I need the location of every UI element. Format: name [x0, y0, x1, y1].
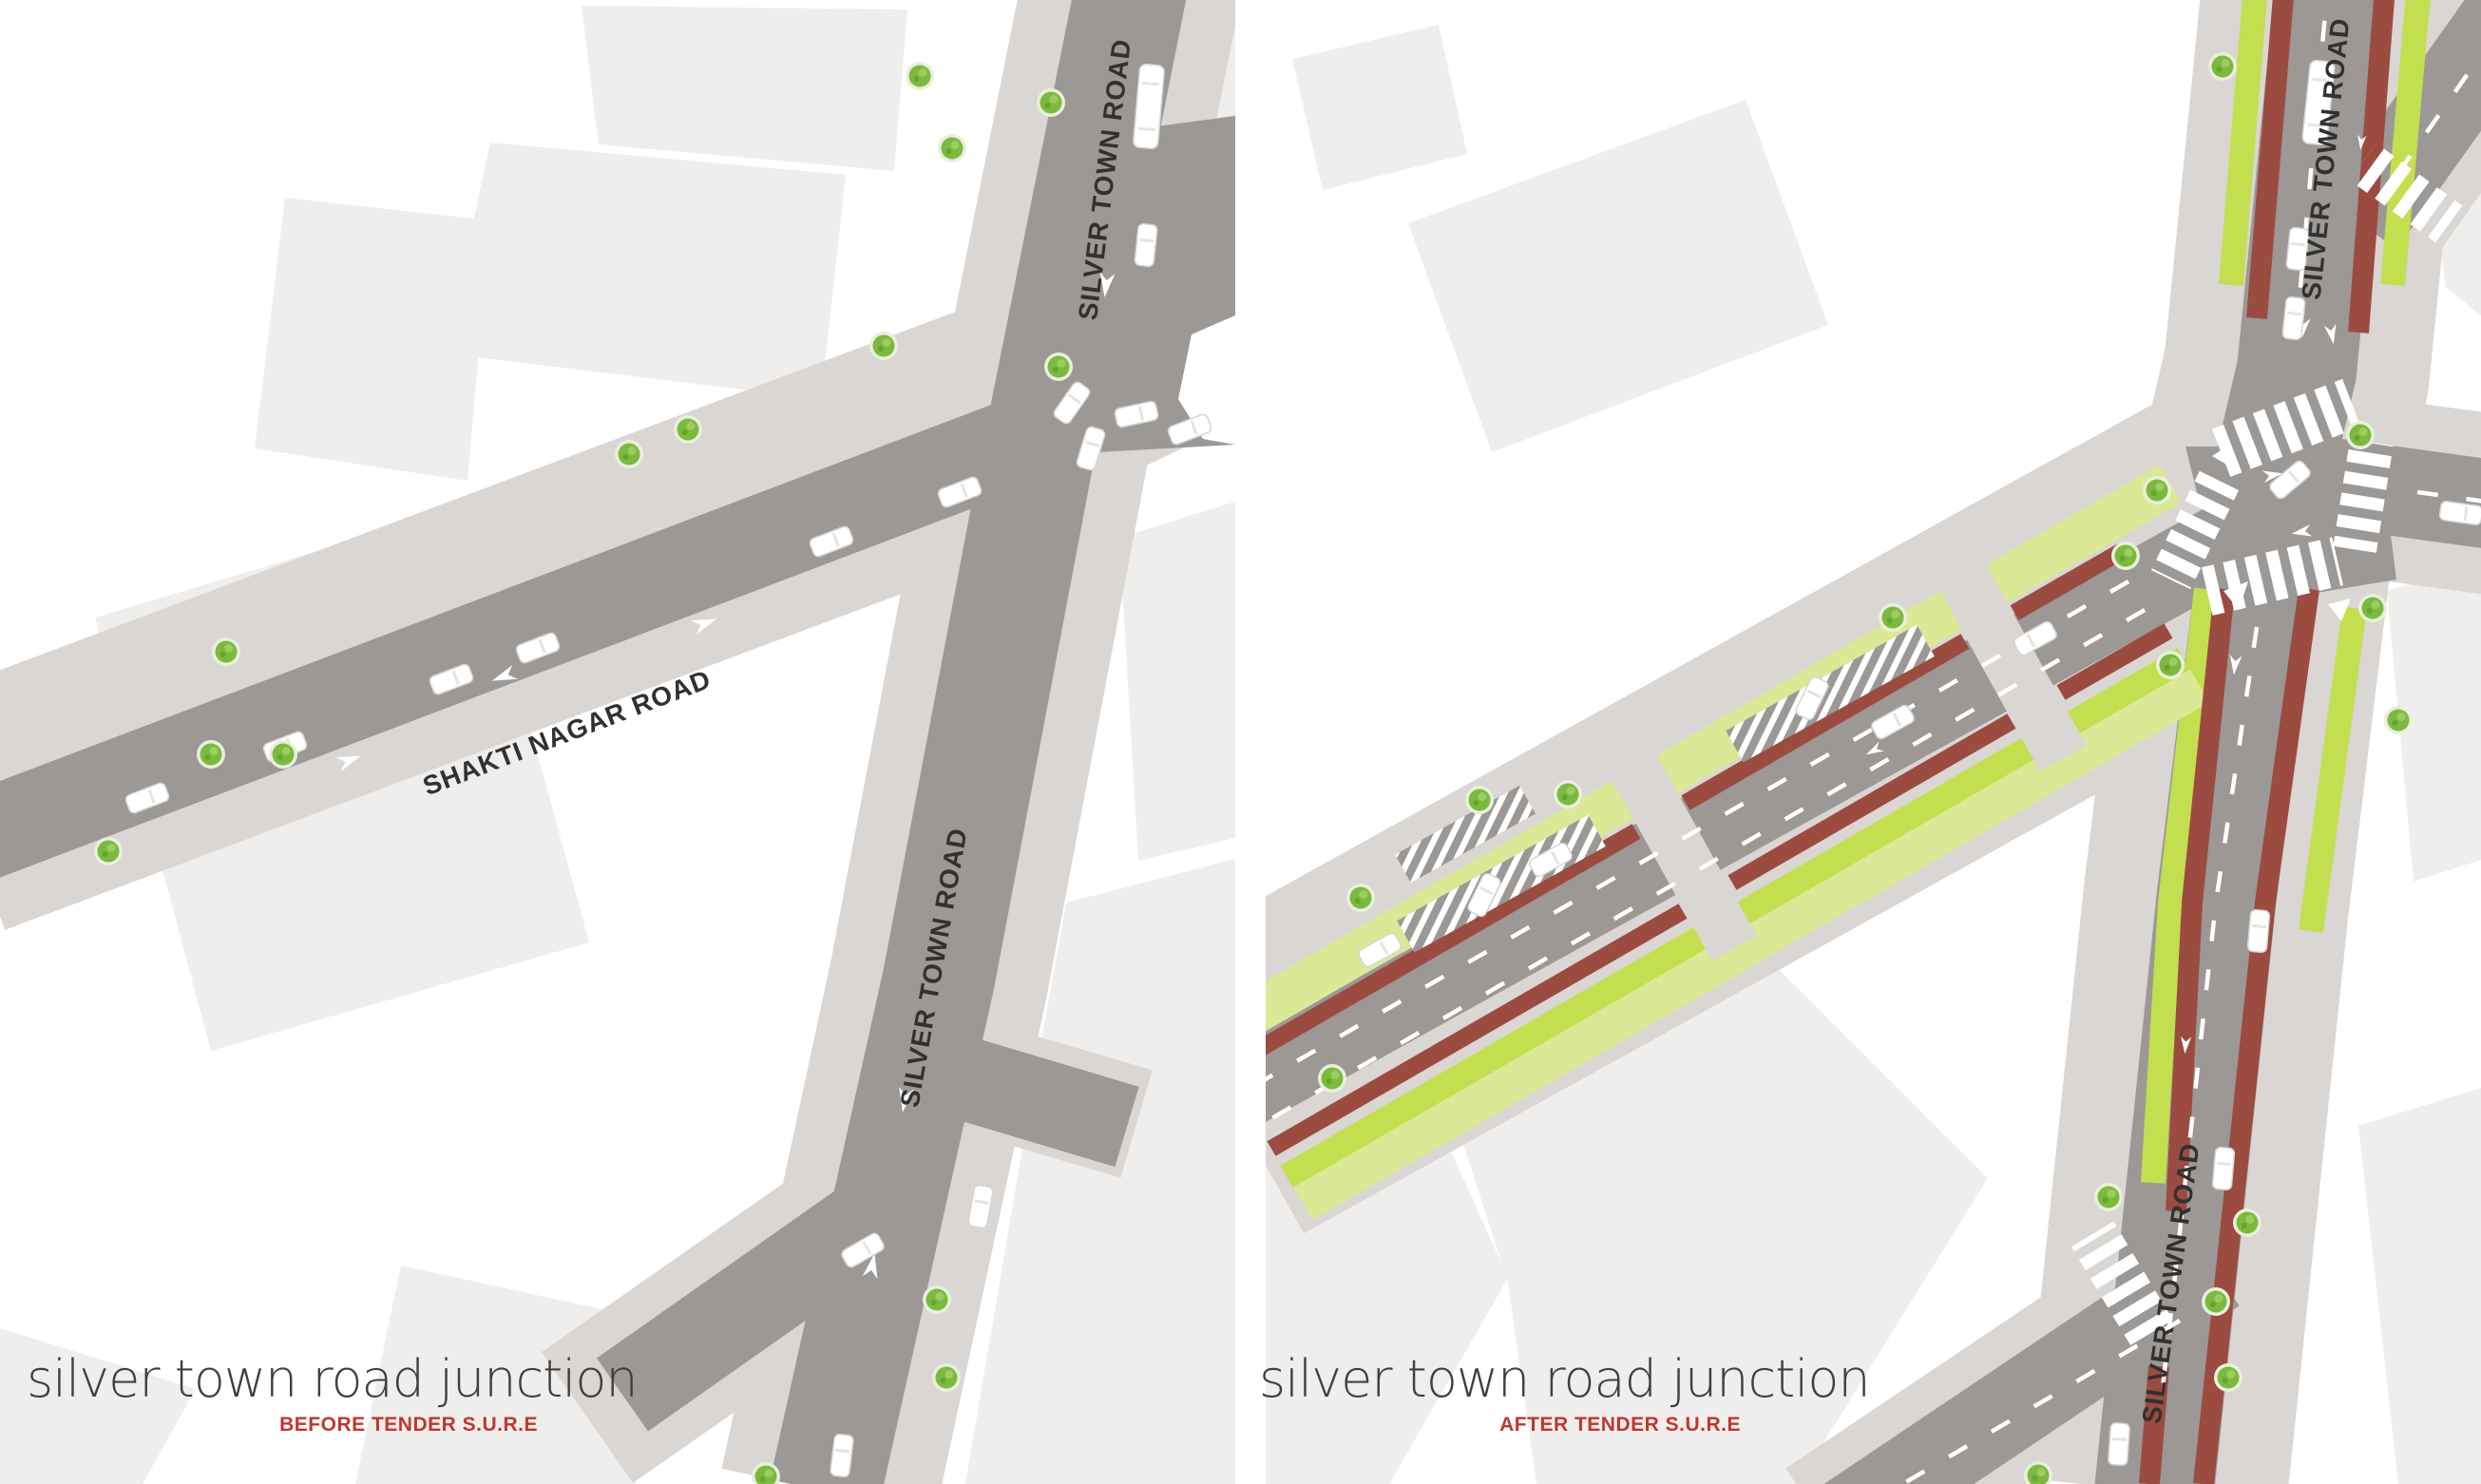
tree [1318, 1064, 1346, 1093]
tree [615, 440, 643, 468]
tree [1044, 352, 1073, 381]
before-caption: silver town road junction BEFORE TENDER … [27, 1353, 538, 1436]
tree [2346, 421, 2375, 449]
tree [2111, 542, 2140, 570]
tree [1037, 88, 1065, 117]
panel-subtitle: BEFORE TENDER S.U.R.E [27, 1414, 538, 1436]
tree [2233, 1208, 2262, 1237]
car [2282, 296, 2305, 340]
tree [2156, 651, 2185, 679]
car [2247, 909, 2270, 953]
tree [906, 62, 934, 90]
tree [94, 837, 123, 866]
before-after-street-plan: SILVER TOWN ROAD SHAKTI NAGAR ROAD SILVE… [0, 0, 2481, 1484]
after-map-panel: SILVER TOWN ROAD SILVER TOWN ROAD [1266, 0, 2481, 1484]
building-block [1292, 25, 1467, 190]
building-block [1408, 100, 1828, 452]
car [1135, 223, 1157, 267]
tree [923, 1285, 951, 1314]
panel-subtitle: AFTER TENDER S.U.R.E [1259, 1414, 1741, 1436]
tree [212, 637, 240, 666]
tree [2094, 1183, 2123, 1211]
tree [1879, 603, 1907, 632]
before-map-panel: SILVER TOWN ROAD SHAKTI NAGAR ROAD SILVE… [0, 0, 1235, 1484]
tree [932, 1363, 961, 1392]
building-block [1119, 502, 1235, 861]
tree [938, 134, 966, 162]
building-block [2358, 1088, 2481, 1484]
after-caption: silver town road junction AFTER TENDER S… [1259, 1353, 1741, 1436]
car [830, 1434, 853, 1477]
tree [2384, 706, 2413, 734]
tree [2214, 1363, 2242, 1392]
tree [1346, 884, 1375, 912]
tree [197, 740, 225, 769]
building-block [255, 198, 490, 481]
tree [2202, 1287, 2230, 1316]
side-stub-road [936, 1070, 1127, 1127]
tree [1554, 780, 1582, 809]
tree [2208, 52, 2237, 81]
building-block [445, 143, 846, 399]
panel-title: silver town road junction [27, 1353, 538, 1407]
tree [1465, 786, 1494, 814]
tree [869, 332, 898, 360]
tree [2143, 476, 2171, 504]
building-block [582, 6, 907, 171]
panel-title: silver town road junction [1259, 1353, 1741, 1407]
car [2108, 1422, 2129, 1465]
tree [674, 415, 702, 444]
tree [2358, 594, 2387, 622]
car [2212, 1147, 2235, 1190]
tree [269, 740, 297, 769]
